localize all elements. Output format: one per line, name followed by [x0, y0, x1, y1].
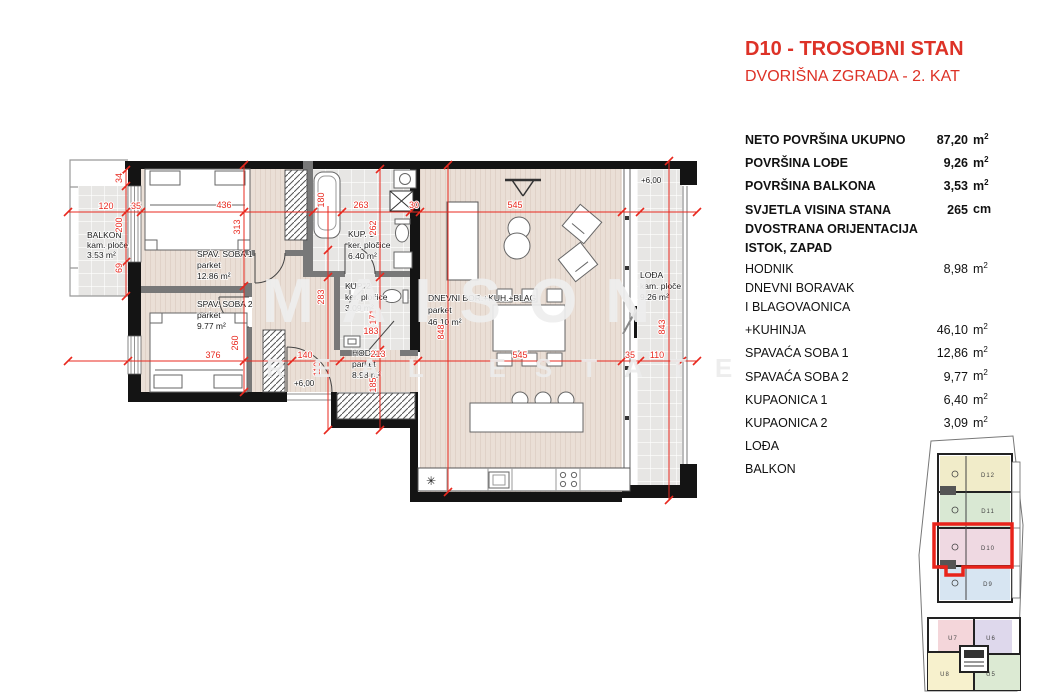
kitchen-counter-icon [418, 468, 630, 491]
svg-text:110: 110 [650, 350, 664, 360]
room-label: BALKON [745, 460, 922, 479]
svg-text:parket: parket [197, 310, 221, 320]
room-label: HODNIK [745, 260, 922, 279]
room-label: I BLAGOVAONICA [745, 298, 922, 317]
svg-text:30: 30 [409, 200, 419, 210]
room-label: SPAVAĆA SOBA 1 [745, 344, 922, 363]
summary-value: 265 [922, 201, 968, 220]
lodja-railing [683, 186, 687, 464]
room-unit: m2 [973, 317, 997, 340]
site-label-d9: D9 [983, 582, 993, 588]
summary-row: POVRŠINA BALKONA 3,53 m2 [745, 173, 997, 196]
page-subtitle: DVORIŠNA ZGRADA - 2. KAT [745, 68, 997, 86]
room-unit: m2 [973, 387, 997, 410]
orientation-line: DVOSTRANA ORIJENTACIJA [745, 220, 997, 239]
svg-text:9.77 m²: 9.77 m² [197, 321, 226, 331]
room-label: SPAVAĆA SOBA 2 [745, 368, 922, 387]
site-label-u5: U5 [986, 672, 996, 678]
svg-text:180: 180 [316, 192, 326, 207]
svg-text:34: 34 [114, 173, 124, 183]
svg-text:120: 120 [98, 201, 113, 211]
header: D10 - TROSOBNI STAN DVORIŠNA ZGRADA - 2.… [745, 38, 997, 86]
svg-text:6.40 m²: 6.40 m² [348, 251, 377, 261]
site-plan: D12 D11 D10 D9 U7 U6 U8 U5 [910, 430, 1042, 697]
svg-text:parket: parket [197, 260, 221, 270]
level-label-hodnik: +6,00 [294, 379, 315, 388]
svg-text:kam. ploče: kam. ploče [87, 240, 128, 250]
svg-text:843: 843 [657, 319, 667, 334]
room-unit: m2 [973, 363, 997, 386]
svg-text:parket: parket [428, 305, 452, 315]
room-value: 6,40 [922, 391, 968, 410]
svg-text:185: 185 [368, 377, 378, 392]
summary-label: POVRŠINA LOĐE [745, 154, 922, 173]
summary-value: 3,53 [922, 177, 968, 196]
room-value: 12,86 [922, 344, 968, 363]
site-label-d10: D10 [981, 546, 995, 552]
summary-unit: cm [973, 196, 997, 219]
room-label: LOĐA [745, 437, 922, 456]
cabinet-icon-living [447, 202, 478, 280]
svg-text:262: 262 [368, 220, 378, 235]
wardrobe-icon-soba1 [285, 170, 307, 240]
label-dnevni: DNEVNI BOR.+KUH.+BLAG [428, 293, 536, 303]
room-value: 9,77 [922, 368, 968, 387]
svg-text:3.53 m²: 3.53 m² [87, 250, 116, 260]
site-label-u6: U6 [986, 636, 996, 642]
cabinet-icon-hodnik [344, 336, 360, 347]
room-row: +KUHINJA 46,10 m2 [745, 317, 997, 340]
svg-text:200: 200 [114, 217, 124, 232]
summary-row: SVJETLA VISINA STANA 265 cm [745, 196, 997, 219]
room-label: KUPAONICA 2 [745, 414, 922, 433]
window-soba1 [128, 186, 141, 262]
summary-value: 9,26 [922, 154, 968, 173]
svg-text:263: 263 [353, 200, 368, 210]
room-row: KUPAONICA 1 6,40 m2 [745, 387, 997, 410]
bed-icon-soba1 [145, 169, 250, 250]
svg-text:183: 183 [363, 326, 378, 336]
svg-text:35: 35 [131, 201, 141, 211]
svg-text:283: 283 [316, 289, 326, 304]
svg-text:376: 376 [205, 350, 220, 360]
site-lower-building: U7 U6 U8 U5 [928, 618, 1020, 690]
label-lodja: LOĐA [640, 270, 663, 280]
svg-text:12.86 m²: 12.86 m² [197, 271, 231, 281]
svg-text:260: 260 [230, 335, 240, 350]
room-row: SPAVAĆA SOBA 2 9,77 m2 [745, 363, 997, 386]
washing-machine-icon [394, 170, 416, 188]
room-label: +KUHINJA [745, 321, 922, 340]
site-label-d12: D12 [981, 473, 995, 479]
svg-text:313: 313 [232, 219, 242, 234]
svg-text:436: 436 [216, 200, 231, 210]
svg-text:140: 140 [297, 350, 312, 360]
summary-block: NETO POVRŠINA UKUPNO 87,20 m2 POVRŠINA L… [745, 127, 997, 258]
room-unit: m2 [973, 256, 997, 279]
summary-label: SVJETLA VISINA STANA [745, 201, 922, 220]
room-label: DNEVNI BORAVAK [745, 279, 922, 298]
svg-text:35: 35 [625, 350, 635, 360]
shower-icon-kup1 [394, 252, 412, 268]
svg-text:69: 69 [114, 263, 124, 273]
room-row: SPAVAĆA SOBA 1 12,86 m2 [745, 340, 997, 363]
svg-text:213: 213 [370, 349, 385, 359]
svg-text:110: 110 [312, 362, 322, 376]
svg-text:545: 545 [512, 350, 527, 360]
room-unit: m2 [973, 340, 997, 363]
svg-text:ker. pločice: ker. pločice [348, 240, 391, 250]
room-value: 8,98 [922, 260, 968, 279]
site-label-u7: U7 [948, 636, 958, 642]
site-unit-d9 [940, 566, 1010, 600]
summary-label: POVRŠINA BALKONA [745, 177, 922, 196]
svg-text:9.26 m²: 9.26 m² [640, 292, 669, 302]
svg-text:545: 545 [507, 200, 522, 210]
svg-text:ker. pločice: ker. pločice [345, 292, 388, 302]
summary-label: NETO POVRŠINA UKUPNO [745, 131, 922, 150]
fridge-icon: ✳ [426, 474, 436, 488]
window-soba2 [128, 336, 141, 374]
wardrobe-icon-entry [337, 393, 415, 419]
room-label: KUPAONICA 1 [745, 391, 922, 410]
svg-text:848: 848 [436, 324, 446, 339]
apartment-floor-plan: ✳ BALKON kam. ploče 3.53 m² SPAV. SOBA 1… [55, 150, 705, 510]
site-upper-building: D12 D11 D10 D9 [934, 454, 1020, 602]
summary-value: 87,20 [922, 131, 968, 150]
label-kup2: KUP. 2 [345, 281, 371, 291]
orientation-line: ISTOK, ZAPAD [745, 239, 997, 258]
page-title: D10 - TROSOBNI STAN [745, 38, 997, 61]
level-label-lodja: +6,00 [641, 176, 662, 185]
summary-row: POVRŠINA LOĐE 9,26 m2 [745, 150, 997, 173]
site-label-d11: D11 [981, 509, 995, 515]
window-wall-lodja [622, 169, 636, 485]
floor-plan-page: ✳ BALKON kam. ploče 3.53 m² SPAV. SOBA 1… [0, 0, 1042, 697]
room-value: 46,10 [922, 321, 968, 340]
summary-unit: m2 [973, 127, 997, 150]
room-row: DNEVNI BORAVAK [745, 279, 997, 298]
room-row: I BLAGOVAONICA [745, 298, 997, 317]
site-label-u8: U8 [940, 672, 950, 678]
room-row: HODNIK 8,98 m2 [745, 256, 997, 279]
svg-text:171: 171 [368, 309, 378, 324]
summary-row: NETO POVRŠINA UKUPNO 87,20 m2 [745, 127, 997, 150]
summary-unit: m2 [973, 173, 997, 196]
svg-text:kam. ploče: kam. ploče [640, 281, 681, 291]
summary-unit: m2 [973, 150, 997, 173]
